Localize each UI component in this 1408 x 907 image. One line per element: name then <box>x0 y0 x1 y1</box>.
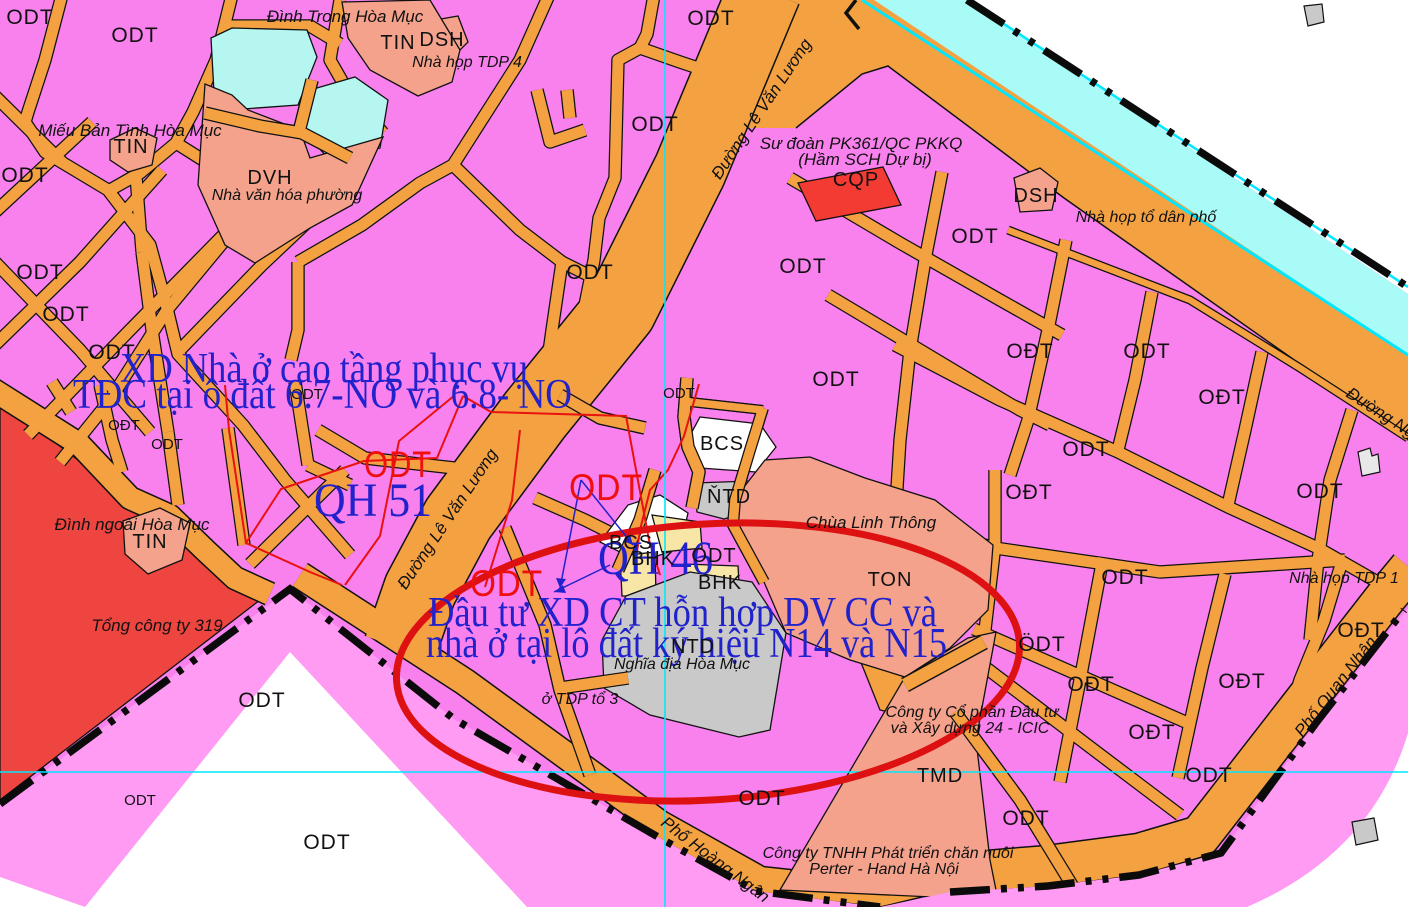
svg-text:ODT: ODT <box>1185 764 1232 787</box>
svg-text:ODT: ODT <box>631 113 678 136</box>
svg-text:ODT: ODT <box>6 6 53 29</box>
svg-text:và Xây dựng 24 - ICIC: và Xây dựng 24 - ICIC <box>891 720 1050 737</box>
svg-text:BCS: BCS <box>700 433 744 455</box>
svg-text:ODT: ODT <box>124 792 156 809</box>
svg-text:CQP: CQP <box>833 169 879 191</box>
svg-text:Công ty Cổ phần Đầu tư: Công ty Cổ phần Đầu tư <box>886 703 1061 721</box>
svg-text:OĐT: OĐT <box>1067 673 1114 696</box>
svg-text:Tổng công ty 319: Tổng công ty 319 <box>91 616 223 635</box>
svg-text:ODT: ODT <box>42 303 89 326</box>
svg-text:QH 51: QH 51 <box>314 474 432 527</box>
svg-text:BHK: BHK <box>631 548 675 570</box>
svg-text:OĐT: OĐT <box>1128 721 1175 744</box>
svg-text:ODT: ODT <box>1062 438 1109 461</box>
svg-text:DSH: DSH <box>1013 185 1058 207</box>
svg-text:TIN: TIN <box>113 136 148 158</box>
svg-text:ODT: ODT <box>111 24 158 47</box>
svg-text:ODT: ODT <box>1296 480 1343 503</box>
svg-text:OĐT: OĐT <box>108 417 140 434</box>
svg-text:ODT: ODT <box>1101 566 1148 589</box>
svg-text:ODT: ODT <box>663 385 695 402</box>
svg-text:ODT: ODT <box>812 368 859 391</box>
svg-text:OĐT: OĐT <box>1198 386 1245 409</box>
svg-text:NTD: NTD <box>671 636 715 658</box>
svg-text:ODT: ODT <box>1002 807 1049 830</box>
svg-text:ODT: ODT <box>738 787 785 810</box>
svg-text:ODT: ODT <box>151 436 183 453</box>
svg-text:ODT: ODT <box>1 164 48 187</box>
svg-text:TĐC tại ô đất 6.7-NO và 6.8- N: TĐC tại ô đất 6.7-NO và 6.8- NO <box>73 372 572 418</box>
svg-text:TON: TON <box>868 569 913 591</box>
svg-text:ODT: ODT <box>569 467 643 508</box>
svg-text:Công ty TNHH Phát triển chăn n: Công ty TNHH Phát triển chăn nuôi <box>763 844 1014 862</box>
svg-text:OĐT: OĐT <box>1218 670 1265 693</box>
svg-text:ODT: ODT <box>951 225 998 248</box>
svg-text:ODT: ODT <box>1123 340 1170 363</box>
svg-text:TIN: TIN <box>380 32 415 54</box>
svg-text:OĐT: OĐT <box>1005 481 1052 504</box>
svg-text:Nhà họp TDP 1: Nhà họp TDP 1 <box>1289 570 1399 587</box>
svg-text:ODT: ODT <box>687 7 734 30</box>
svg-text:ODT: ODT <box>779 255 826 278</box>
svg-text:DVH: DVH <box>247 167 292 189</box>
svg-text:ODT: ODT <box>238 689 285 712</box>
svg-text:ÖDT: ÖDT <box>1018 633 1065 656</box>
svg-text:Nhà văn hóa phường: Nhà văn hóa phường <box>212 187 363 204</box>
svg-text:(Hầm SCH Dự bị): (Hầm SCH Dự bị) <box>798 150 932 169</box>
svg-text:ODT: ODT <box>566 261 613 284</box>
svg-text:Nghĩa địa Hòa Mục: Nghĩa địa Hòa Mục <box>614 656 750 673</box>
svg-text:ŇTD: ŇTD <box>707 485 751 508</box>
svg-text:ở TDP tổ 3: ở TDP tổ 3 <box>542 690 619 708</box>
svg-text:DSH: DSH <box>419 29 464 51</box>
svg-text:Nhà họp tổ dân phố: Nhà họp tổ dân phố <box>1076 208 1219 226</box>
svg-text:ODT: ODT <box>691 545 736 567</box>
svg-text:TIN: TIN <box>132 531 167 553</box>
svg-text:BHK: BHK <box>698 572 742 594</box>
svg-text:Chùa Linh Thông: Chùa Linh Thông <box>806 513 937 532</box>
svg-text:ODT: ODT <box>303 831 350 854</box>
svg-text:TMD: TMD <box>917 765 963 787</box>
svg-text:Perter - Hand Hà Nội: Perter - Hand Hà Nội <box>809 861 959 878</box>
svg-text:ODT: ODT <box>16 261 63 284</box>
svg-text:Đình Trong Hòa Mục: Đình Trong Hòa Mục <box>267 7 424 26</box>
svg-text:OĐT: OĐT <box>1006 340 1053 363</box>
svg-text:Nhà họp TDP 4: Nhà họp TDP 4 <box>412 54 522 71</box>
